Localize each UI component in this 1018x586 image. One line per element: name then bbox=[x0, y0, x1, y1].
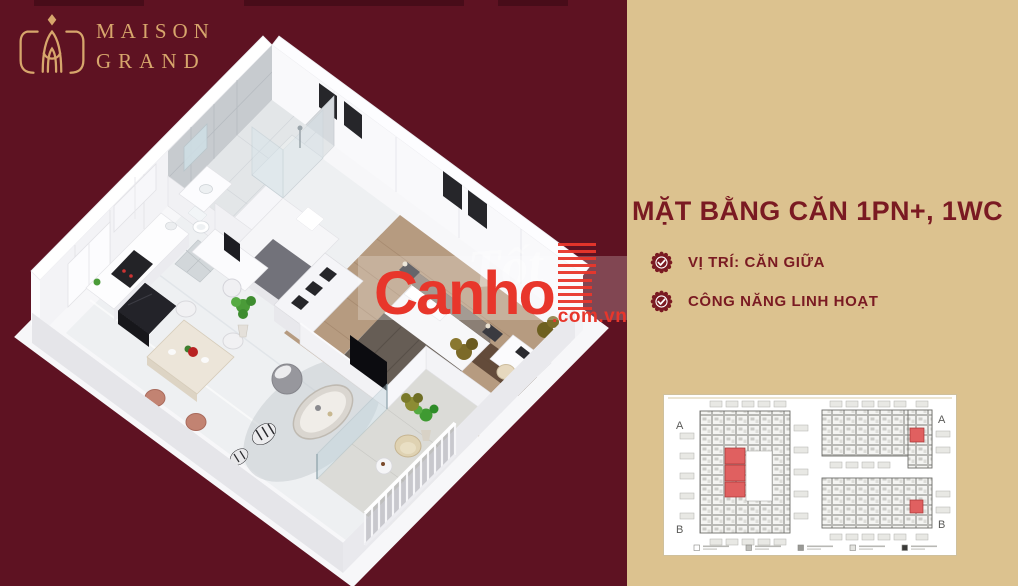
brand-logo: MAISON GRAND bbox=[16, 10, 276, 90]
hero-panel: MAISON GRAND Tốt Canho .com.vn bbox=[0, 0, 627, 586]
maison-grand-emblem-icon bbox=[16, 12, 88, 78]
highlighted-unit bbox=[725, 482, 745, 497]
info-panel: MẶT BẰNG CĂN 1PN+, 1WC VỊ TRÍ: CĂN GIỮA bbox=[627, 0, 1018, 586]
watermark-domain-text: .com.vn bbox=[552, 306, 627, 328]
legend-swatch bbox=[798, 545, 804, 551]
highlighted-unit bbox=[725, 465, 745, 481]
legend-swatch bbox=[850, 545, 856, 551]
keyplan-card: A B A bbox=[664, 395, 956, 555]
tower-right-label-b: B bbox=[938, 519, 945, 531]
title-unit-type: 1PN+, 1WC bbox=[856, 196, 1003, 226]
feature-item-location: VỊ TRÍ: CĂN GIỮA bbox=[650, 251, 825, 274]
brochure-page: MAISON GRAND Tốt Canho .com.vn MẶT BẰNG … bbox=[0, 0, 1018, 586]
title-prefix: MẶT BẰNG CĂN bbox=[632, 196, 856, 226]
highlighted-unit bbox=[910, 428, 924, 442]
tower-left-label-b: B bbox=[676, 524, 683, 536]
feature-label: CÔNG NĂNG LINH HOẠT bbox=[688, 293, 879, 310]
watermark-brand-text: Canho bbox=[374, 258, 554, 328]
keyplan-legend bbox=[694, 545, 937, 551]
tower-right-label-a: A bbox=[938, 414, 946, 426]
watermark-seal-icon bbox=[558, 243, 596, 274]
check-badge-icon bbox=[650, 251, 673, 274]
brand-name-line2: GRAND bbox=[96, 49, 215, 74]
feature-label: VỊ TRÍ: CĂN GIỮA bbox=[688, 254, 825, 271]
keyplan-diagram: A B A bbox=[664, 395, 956, 555]
tower-left-label-a: A bbox=[676, 420, 684, 432]
page-title: MẶT BẰNG CĂN 1PN+, 1WC bbox=[632, 196, 1016, 227]
feature-item-flexibility: CÔNG NĂNG LINH HOẠT bbox=[650, 290, 879, 313]
legend-swatch bbox=[694, 545, 700, 551]
legend-swatch bbox=[746, 545, 752, 551]
highlighted-unit bbox=[725, 448, 745, 464]
highlighted-unit bbox=[910, 500, 923, 513]
legend-swatch bbox=[902, 545, 908, 551]
brand-name-line1: MAISON bbox=[96, 19, 215, 44]
check-badge-icon bbox=[650, 290, 673, 313]
keyplan-tower-right: A B bbox=[822, 401, 950, 540]
keyplan-tower-left: A B bbox=[676, 401, 808, 545]
brand-wordmark: MAISON GRAND bbox=[96, 19, 215, 74]
